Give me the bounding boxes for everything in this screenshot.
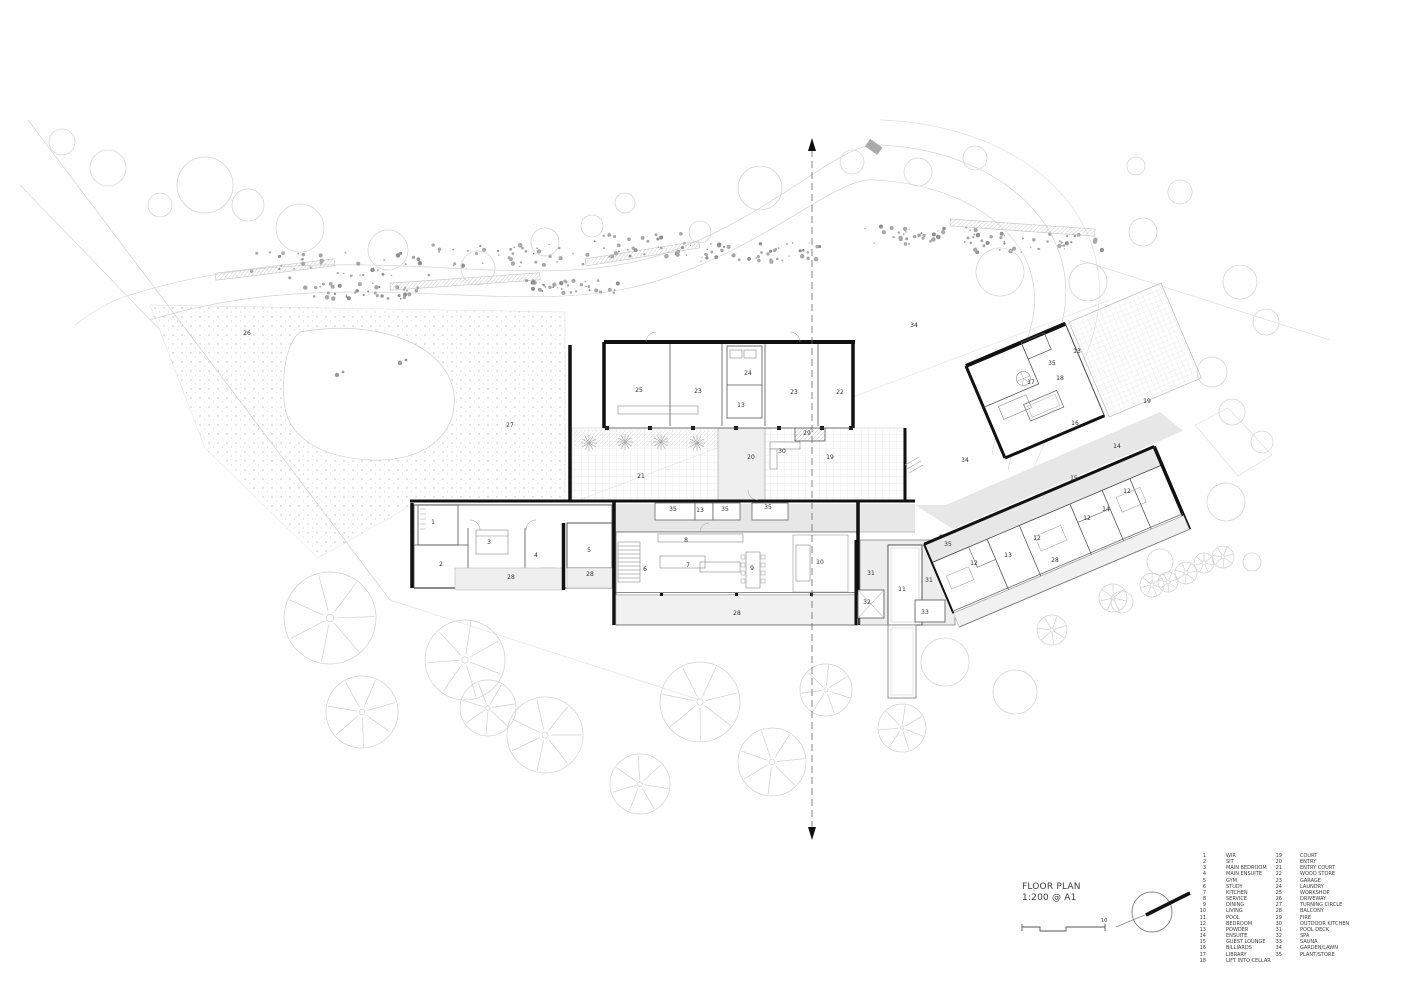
- room-number-label: 26: [243, 330, 251, 337]
- room-number-label: 15: [1070, 475, 1078, 482]
- room-number-label: 11: [898, 586, 906, 593]
- room-number-label: 24: [744, 370, 752, 377]
- planter-strip: [575, 430, 725, 446]
- room-number-label: 10: [816, 559, 824, 566]
- room-number-label: 35: [764, 504, 772, 511]
- room-number-label: 29: [803, 430, 811, 437]
- drawing-scale: 1:200 @ A1: [1022, 893, 1081, 904]
- room-number-label: 34: [961, 457, 969, 464]
- legend-label: PLANT/STORE: [1300, 952, 1335, 958]
- legend-entry: 35PLANT/STORE: [1272, 952, 1349, 958]
- room-number-label: 32: [863, 599, 871, 606]
- room-number-label: 4: [534, 552, 538, 559]
- room-number-label: 6: [643, 566, 647, 573]
- room-number-label: 33: [921, 609, 929, 616]
- room-number-label: 25: [635, 387, 643, 394]
- room-number-label: 35: [721, 506, 729, 513]
- room-number-label: 28: [1051, 557, 1059, 564]
- room-number-label: 8: [684, 537, 688, 544]
- room-number-label: 5: [587, 547, 591, 554]
- room-number-label: 23: [790, 389, 798, 396]
- room-number-label: 30: [778, 448, 786, 455]
- room-number-label: 12: [1083, 515, 1091, 522]
- room-number-label: 28: [507, 574, 515, 581]
- site-plan-drawing: 2627343425232413232229302019211342285283…: [0, 0, 1416, 1000]
- room-number-label: 13: [1004, 552, 1012, 559]
- room-number-label: 18: [1056, 375, 1064, 382]
- room-number-label: 21: [637, 473, 645, 480]
- legend-number: 35: [1272, 952, 1282, 958]
- planting-band: [250, 225, 1104, 301]
- room-number-label: 13: [1073, 348, 1081, 355]
- room-number-label: 14: [1102, 506, 1110, 513]
- room-number-label: 1: [431, 519, 435, 526]
- room-number-label: 3: [487, 539, 491, 546]
- room-number-label: 16: [1071, 420, 1079, 427]
- legend-column-1: 1WIR2SIT3MAIN BEDROOM4MAIN ENSUITE5GYM6S…: [1196, 853, 1272, 964]
- room-number-label: 2: [439, 561, 443, 568]
- drawing-title: FLOOR PLAN: [1022, 882, 1081, 893]
- legend: 1WIR2SIT3MAIN BEDROOM4MAIN ENSUITE5GYM6S…: [1196, 853, 1349, 964]
- entry-hall: [718, 428, 765, 500]
- room-number-label: 28: [586, 571, 594, 578]
- room-number-label: 13: [696, 507, 704, 514]
- room-number-label: 7: [686, 562, 690, 569]
- room-number-label: 19: [1143, 398, 1151, 405]
- room-number-label: 27: [506, 422, 514, 429]
- legend-label: LIFT INTO CELLAR: [1226, 958, 1271, 964]
- room-number-label: 17: [1027, 379, 1035, 386]
- room-number-label: 12: [1123, 488, 1131, 495]
- room-number-label: 28: [733, 610, 741, 617]
- room-number-label: 35: [944, 541, 952, 548]
- room-number-label: 12: [970, 560, 978, 567]
- room-number-label: 35: [669, 506, 677, 513]
- scale-bar-label: 10: [1101, 918, 1107, 924]
- room-number-label: 31: [925, 577, 933, 584]
- legend-entry: 18LIFT INTO CELLAR: [1196, 958, 1272, 964]
- title-block: FLOOR PLAN 1:200 @ A1: [1022, 882, 1081, 904]
- legend-number: 18: [1196, 958, 1206, 964]
- north-arrow-icon: [1108, 884, 1198, 944]
- room-number-label: 13: [737, 402, 745, 409]
- room-number-label: 9: [750, 565, 754, 572]
- room-number-label: 19: [826, 454, 834, 461]
- floor-plan-sheet: 2627343425232413232229302019211342285283…: [0, 0, 1416, 1000]
- room-number-label: 31: [867, 570, 875, 577]
- room-number-label: 20: [747, 454, 755, 461]
- lap-pool-extension: [888, 625, 916, 698]
- room-number-label: 23: [694, 388, 702, 395]
- room-number-label: 12: [1033, 535, 1041, 542]
- room-number-label: 22: [836, 389, 844, 396]
- scale-bar: 10: [1018, 914, 1118, 936]
- room-number-label: 34: [910, 322, 918, 329]
- room-number-label: 14: [1113, 443, 1121, 450]
- legend-column-2: 19COURT20ENTRY21ENTRY COURT22WOOD STORE2…: [1272, 853, 1349, 964]
- room-number-label: 35: [1048, 360, 1056, 367]
